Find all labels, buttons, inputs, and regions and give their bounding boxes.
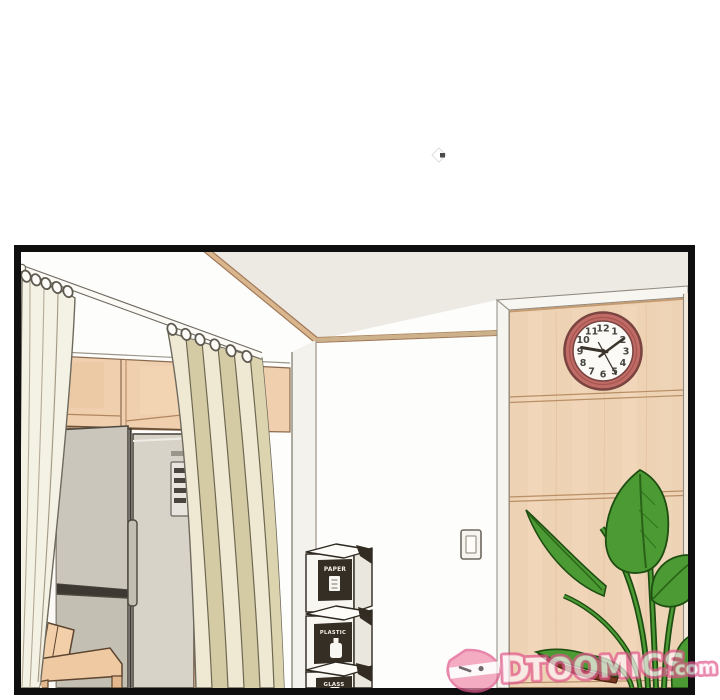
svg-text:6: 6: [600, 370, 607, 381]
stray-mark: [432, 148, 446, 162]
svg-text:7: 7: [588, 366, 595, 377]
paper-icon: [329, 576, 340, 591]
webtoon-page: { "clock": { "numbers": ["1","2","3","4"…: [0, 0, 720, 700]
bin-plastic-label: PLASTIC: [320, 630, 346, 636]
svg-text:3: 3: [623, 347, 630, 358]
svg-text:4: 4: [620, 358, 627, 369]
bin-paper: PAPER: [306, 544, 372, 612]
wall-clock: 1 2 3 4 5 6 7 8 9 10 11 12: [565, 313, 642, 390]
fridge-handle: [128, 520, 137, 606]
svg-text:12: 12: [596, 324, 609, 335]
refrigerator: [56, 426, 194, 688]
recycling-bins: PAPER PLASTIC: [306, 544, 372, 691]
watermark-suffix: .com: [668, 657, 717, 680]
bin-paper-label: PAPER: [324, 567, 347, 573]
light-switch: [461, 530, 481, 559]
svg-text:1: 1: [611, 327, 618, 338]
watermark-brand: TOOMICS: [526, 647, 687, 688]
svg-text:8: 8: [580, 358, 587, 369]
comic-panel-art: PAPER PLASTIC: [0, 0, 720, 700]
